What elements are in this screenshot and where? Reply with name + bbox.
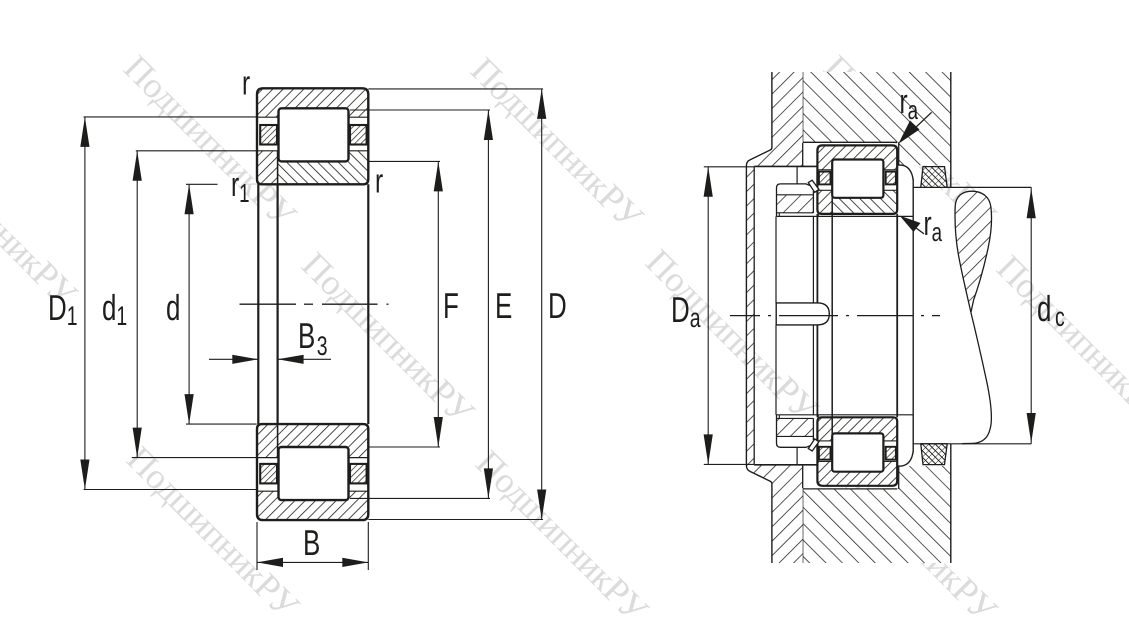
svg-text:d: d [166,287,180,328]
svg-text:F: F [443,285,459,326]
svg-text:r: r [375,163,383,201]
svg-text:D: D [548,285,567,326]
svg-text:E: E [495,285,512,326]
svg-text:r: r [242,65,250,103]
svg-text:B: B [303,522,320,563]
